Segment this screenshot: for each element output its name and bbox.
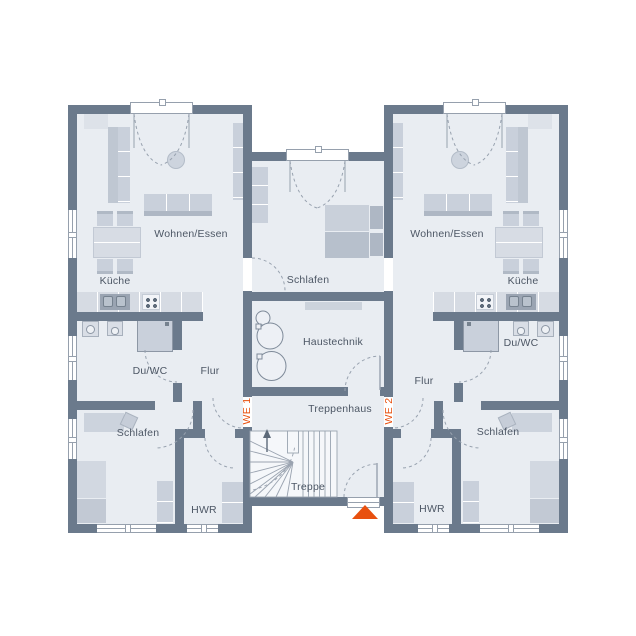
- plan-linework: [0, 0, 636, 636]
- room-label-kitchen-we2: Küche: [508, 276, 539, 288]
- room-label-bedroom-we1: Schlafen: [117, 428, 159, 440]
- room-label-stairhall: Treppenhaus: [308, 404, 372, 416]
- room-label-bath-we2: Du/WC: [504, 338, 539, 350]
- room-label-bedroom-we2: Schlafen: [477, 427, 519, 439]
- unit-label-we2: WE 2: [383, 398, 395, 425]
- entrance-marker-icon: [352, 505, 378, 519]
- room-label-bedroom-core: Schlafen: [287, 275, 329, 287]
- room-label-tech: Haustechnik: [303, 337, 363, 349]
- room-label-kitchen-we1: Küche: [100, 276, 131, 288]
- room-label-living-we2: Wohnen/Essen: [410, 229, 483, 241]
- room-label-hall-we2: Flur: [415, 376, 434, 388]
- unit-label-we1: WE 1: [241, 398, 253, 425]
- room-label-utility-we1: HWR: [191, 505, 217, 517]
- room-label-hall-we1: Flur: [201, 366, 220, 378]
- floor-plan: Wohnen/Essen Küche Du/WC Flur Schlafen H…: [0, 0, 636, 636]
- tech-equipment: [256, 311, 286, 381]
- room-label-utility-we2: HWR: [419, 504, 445, 516]
- room-label-bath-we1: Du/WC: [133, 366, 168, 378]
- room-label-stairs: Treppe: [291, 482, 325, 494]
- room-label-living-we1: Wohnen/Essen: [154, 229, 227, 241]
